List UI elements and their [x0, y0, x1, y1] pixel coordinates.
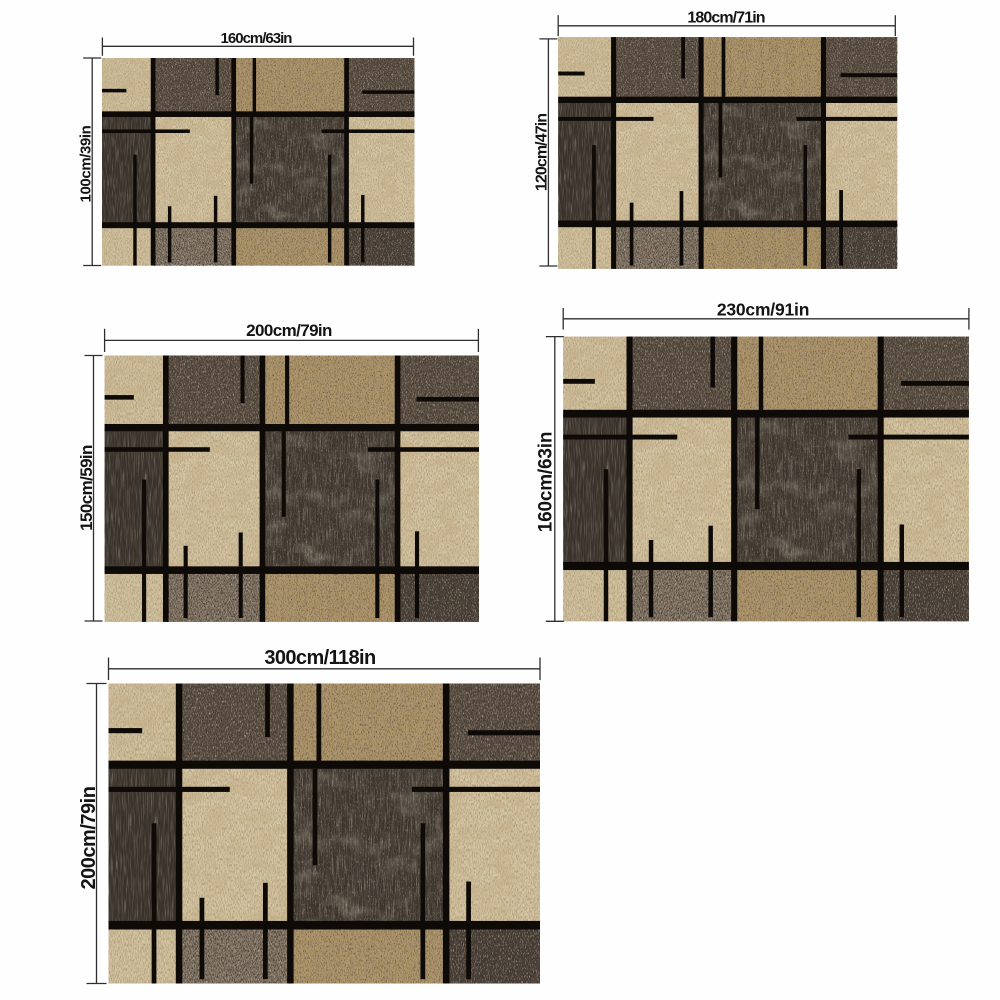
- svg-text:300cm/118in: 300cm/118in: [264, 647, 375, 669]
- svg-text:120cm/47in: 120cm/47in: [534, 114, 551, 191]
- svg-text:100cm/39in: 100cm/39in: [78, 125, 95, 202]
- svg-text:180cm/71in: 180cm/71in: [687, 10, 764, 27]
- svg-text:200cm/79in: 200cm/79in: [246, 321, 332, 340]
- svg-text:200cm/79in: 200cm/79in: [78, 787, 100, 890]
- svg-text:160cm/63in: 160cm/63in: [221, 30, 293, 47]
- svg-text:160cm/63in: 160cm/63in: [536, 432, 557, 532]
- svg-text:230cm/91in: 230cm/91in: [717, 300, 809, 320]
- svg-text:150cm/59in: 150cm/59in: [77, 445, 96, 531]
